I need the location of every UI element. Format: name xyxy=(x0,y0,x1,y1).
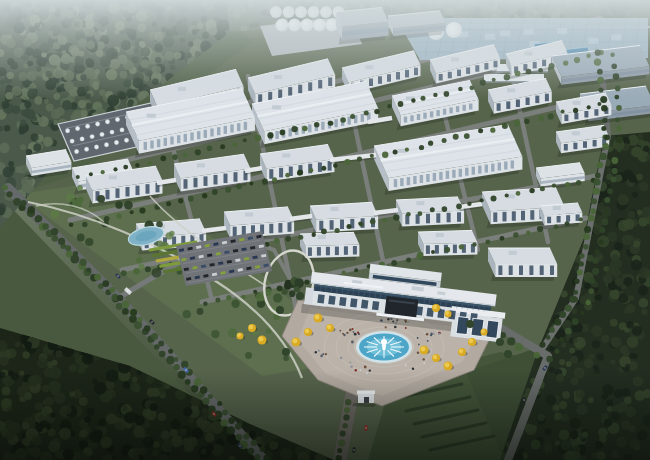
sky-bridge xyxy=(290,216,312,219)
sky-bridge xyxy=(157,180,176,183)
green-tree xyxy=(282,348,290,356)
building-midrise xyxy=(418,230,477,260)
green-tree xyxy=(276,306,284,314)
green-tree xyxy=(504,350,512,358)
building-midrise xyxy=(540,203,582,230)
green-tree xyxy=(466,320,474,328)
industrial-park-aerial-rendering xyxy=(0,0,650,460)
bottom-vignette xyxy=(0,370,650,460)
sky-bridge xyxy=(374,210,398,213)
building-midrise xyxy=(488,248,557,281)
sky-bridge xyxy=(245,168,262,171)
sky-bridge xyxy=(202,228,226,231)
rendering-canvas xyxy=(0,0,650,460)
green-tree xyxy=(296,292,304,300)
building-midrise xyxy=(310,202,378,236)
fountain xyxy=(354,330,414,364)
green-tree xyxy=(496,338,504,346)
atmospheric-haze xyxy=(0,0,650,100)
